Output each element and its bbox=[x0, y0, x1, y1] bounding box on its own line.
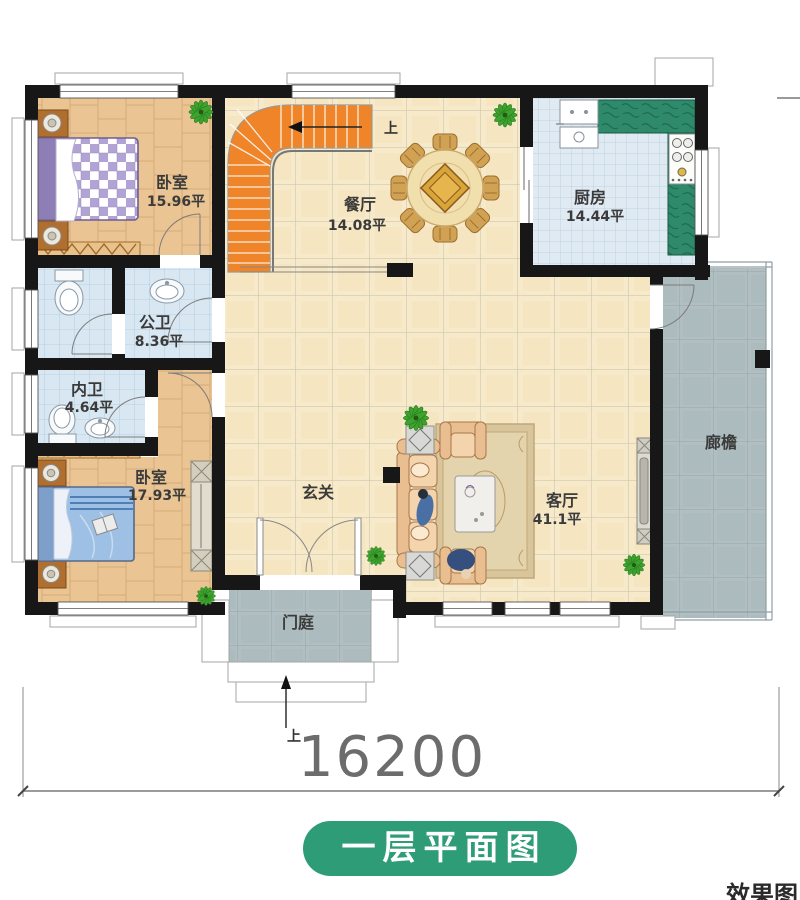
dimension-annotation: 16200 bbox=[18, 687, 784, 797]
floor-plan-svg: 卧室 15.96平 餐厅 14.08平 厨房 14.44平 公卫 8.36平 内… bbox=[0, 0, 800, 900]
veranda-label: 廊檐 bbox=[705, 433, 737, 452]
double-bed-purple bbox=[36, 138, 138, 221]
porch-label: 门庭 bbox=[282, 613, 314, 632]
door-opening bbox=[160, 255, 200, 268]
bedroom1-area: 15.96平 bbox=[147, 194, 205, 210]
veranda-step bbox=[641, 616, 675, 629]
living-label: 客厅 bbox=[546, 491, 578, 510]
kitchen-label: 厨房 bbox=[574, 188, 606, 207]
door-opening bbox=[520, 147, 533, 223]
title-badge: 一层平面图 bbox=[303, 821, 577, 876]
living-area: 41.1平 bbox=[533, 512, 582, 528]
column bbox=[383, 467, 400, 483]
porch-step bbox=[236, 682, 366, 702]
window-sill bbox=[12, 288, 24, 350]
dining-table-set bbox=[391, 134, 499, 242]
kitchen-area: 14.44平 bbox=[566, 209, 624, 225]
coffee-table bbox=[455, 476, 495, 532]
window-sill bbox=[12, 466, 24, 562]
foyer-label: 玄关 bbox=[302, 483, 334, 502]
wall bbox=[25, 358, 225, 370]
porch-step bbox=[228, 662, 374, 682]
side-table bbox=[406, 426, 434, 454]
public-bath-area: 8.36平 bbox=[135, 334, 184, 350]
dimension-value: 16200 bbox=[298, 725, 486, 790]
floor-plan-page: 卧室 15.96平 餐厅 14.08平 厨房 14.44平 公卫 8.36平 内… bbox=[0, 0, 800, 900]
dining-area: 14.08平 bbox=[328, 218, 386, 234]
toilet-icon bbox=[55, 270, 83, 281]
stair-up-label: 上 bbox=[384, 121, 398, 137]
door-opening bbox=[212, 373, 225, 417]
door-opening bbox=[112, 314, 125, 354]
armchair bbox=[440, 422, 486, 459]
door-opening bbox=[145, 397, 158, 437]
bedroom2-nook-floor bbox=[158, 370, 212, 457]
public-bath-label: 公卫 bbox=[139, 313, 171, 332]
private-bath-area: 4.64平 bbox=[65, 400, 114, 416]
window-sill bbox=[12, 373, 24, 435]
bedroom1-label: 卧室 bbox=[156, 173, 188, 192]
wall-stub bbox=[755, 350, 770, 368]
window-sill bbox=[287, 73, 400, 84]
bedroom2-area: 17.93平 bbox=[128, 488, 186, 504]
wall bbox=[212, 575, 260, 590]
window-sill bbox=[50, 616, 196, 627]
bedroom2-label: 卧室 bbox=[135, 468, 167, 487]
door-opening bbox=[212, 298, 225, 342]
kitchen-sink-icon bbox=[556, 100, 598, 148]
sofa bbox=[397, 439, 440, 568]
private-bath-label: 内卫 bbox=[71, 380, 103, 399]
wall-stub bbox=[387, 263, 413, 277]
wardrobe bbox=[191, 461, 212, 571]
stove-icon bbox=[669, 134, 695, 184]
window-sill bbox=[12, 118, 24, 240]
plan-title: 一层平面图 bbox=[342, 828, 547, 868]
dining-label: 餐厅 bbox=[343, 195, 376, 214]
window-sill bbox=[708, 148, 719, 237]
chimney bbox=[655, 58, 713, 86]
window-sill bbox=[435, 616, 619, 627]
wall bbox=[25, 443, 158, 456]
tv-cabinet bbox=[637, 438, 652, 544]
double-bed-blue bbox=[34, 487, 134, 561]
side-table bbox=[406, 552, 434, 580]
window-sill bbox=[55, 73, 183, 84]
door-opening bbox=[650, 285, 663, 329]
wall bbox=[520, 265, 710, 277]
counter bbox=[598, 100, 695, 133]
cropped-corner-text: 效果图 bbox=[726, 881, 798, 900]
